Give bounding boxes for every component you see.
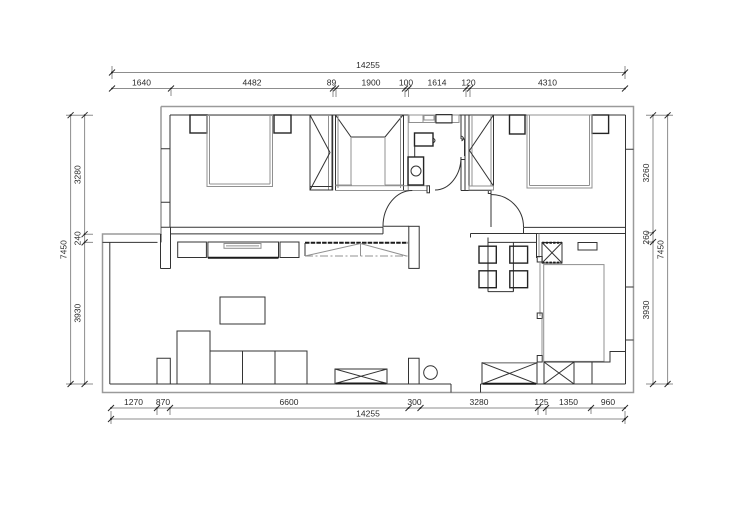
svg-text:1350: 1350	[559, 397, 578, 407]
svg-text:3280: 3280	[73, 165, 83, 184]
svg-text:4482: 4482	[243, 78, 262, 88]
svg-text:14255: 14255	[356, 60, 380, 70]
svg-text:120: 120	[461, 78, 475, 88]
svg-text:100: 100	[399, 78, 413, 88]
svg-text:3930: 3930	[641, 300, 651, 319]
svg-text:300: 300	[407, 397, 421, 407]
svg-text:3930: 3930	[73, 303, 83, 322]
svg-text:1640: 1640	[132, 78, 151, 88]
svg-text:960: 960	[601, 397, 615, 407]
svg-text:870: 870	[156, 397, 170, 407]
svg-text:6600: 6600	[280, 397, 299, 407]
svg-text:7450: 7450	[656, 240, 666, 259]
svg-text:14255: 14255	[356, 409, 380, 419]
svg-text:4310: 4310	[538, 78, 557, 88]
svg-text:1614: 1614	[428, 78, 447, 88]
svg-text:1270: 1270	[124, 397, 143, 407]
svg-text:260: 260	[641, 230, 651, 244]
svg-text:1900: 1900	[362, 78, 381, 88]
svg-text:7450: 7450	[59, 240, 69, 259]
svg-text:3280: 3280	[470, 397, 489, 407]
svg-text:89: 89	[327, 78, 337, 88]
svg-text:125: 125	[534, 397, 548, 407]
svg-text:3260: 3260	[641, 163, 651, 182]
svg-text:240: 240	[73, 231, 83, 245]
